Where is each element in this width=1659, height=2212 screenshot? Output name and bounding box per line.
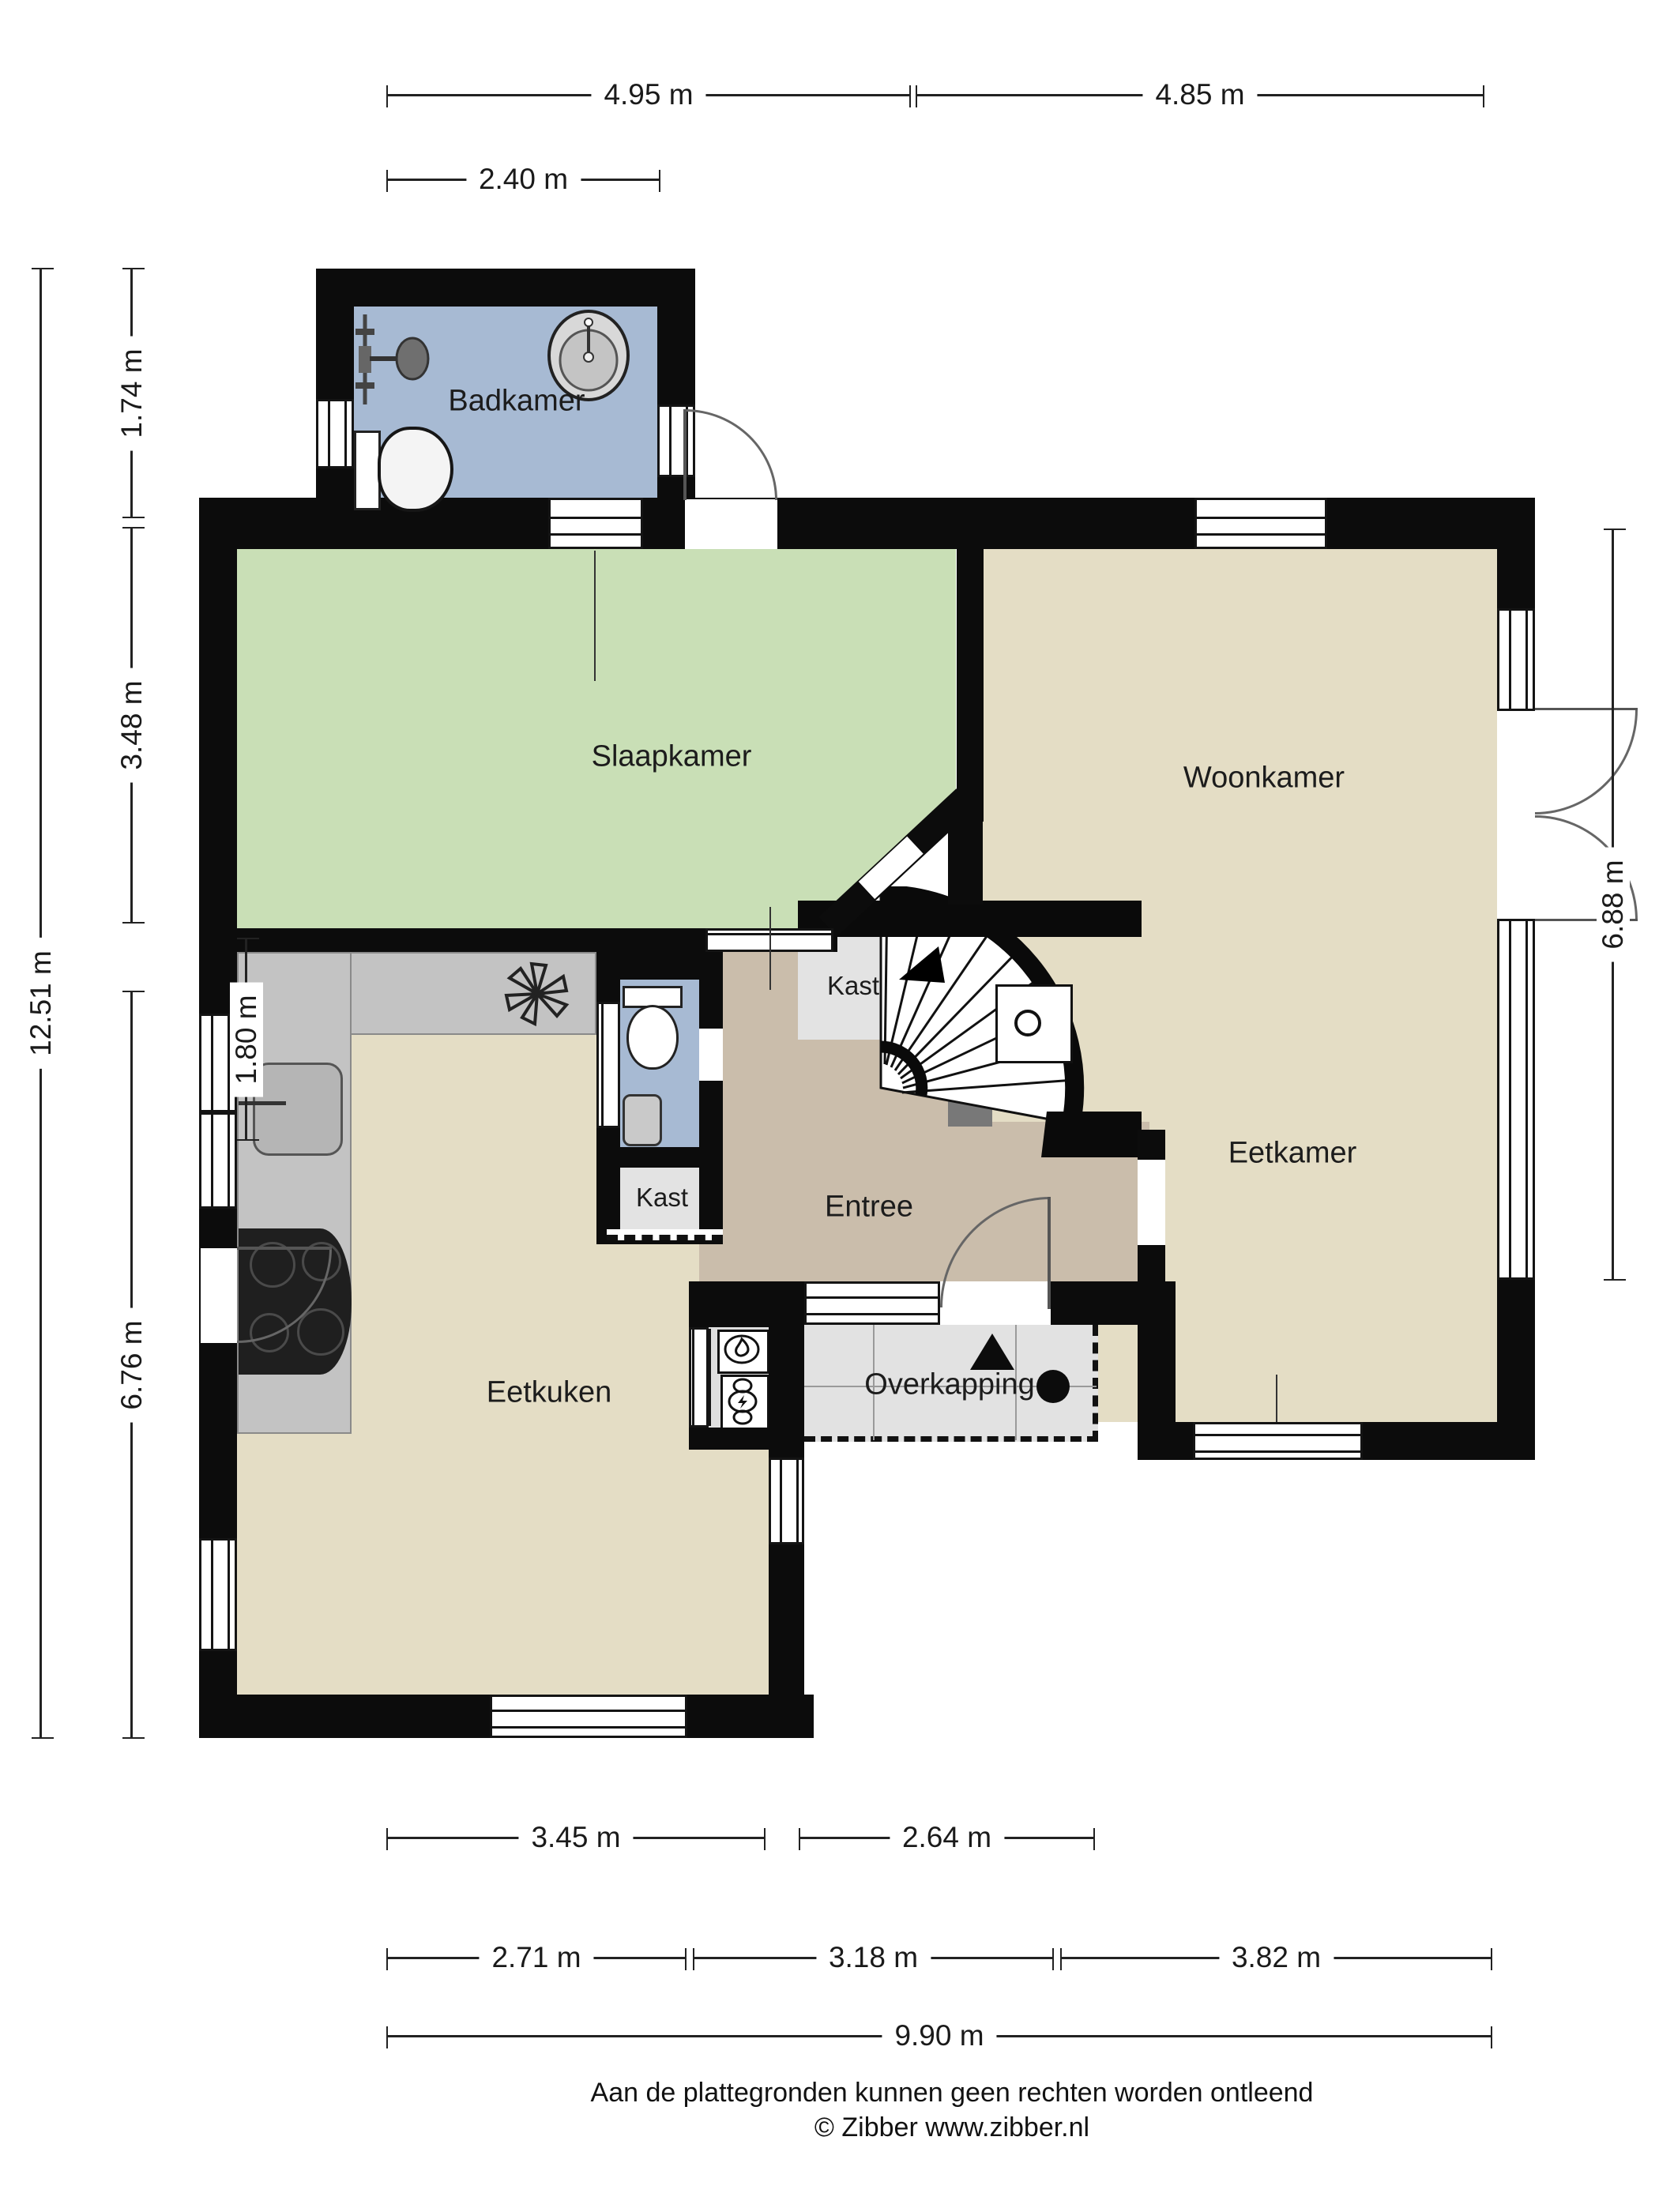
- side-door-leaf: [237, 1247, 332, 1250]
- dim-bottom-total: 9.90 m: [387, 2035, 1492, 2037]
- side-door-gap: [201, 1248, 237, 1343]
- label-woonkamer: Woonkamer: [1183, 762, 1345, 796]
- label-slaapkamer: Slaapkamer: [592, 740, 752, 774]
- wood-stove-ring: [1014, 1010, 1041, 1036]
- window-leader: [769, 907, 771, 990]
- dim-top-right: 4.85 m: [916, 94, 1484, 96]
- dim-bottom-right2: 3.82 m: [1061, 1957, 1492, 1959]
- dim-label: 3.18 m: [816, 1941, 931, 1974]
- dim-left-total: 12.51 m: [39, 269, 42, 1738]
- back-door-gap: [685, 499, 777, 549]
- stair-base-wall: [1041, 1112, 1142, 1157]
- toilet-badkamer-tank: [354, 431, 381, 510]
- dim-label: 1.74 m: [115, 336, 149, 450]
- dim-badkamer-width: 2.40 m: [387, 179, 660, 181]
- copyright-text: © Zibber www.zibber.nl: [814, 2112, 1089, 2143]
- dim-bottom-eetkuken: 3.45 m: [387, 1837, 765, 1839]
- french-door-gap: [1497, 711, 1535, 919]
- wall: [948, 818, 983, 905]
- window: [1194, 498, 1327, 549]
- label-eetkuken: Eetkuken: [487, 1376, 611, 1410]
- wall: [957, 549, 984, 822]
- post-dot: [1036, 1370, 1070, 1403]
- burner: [297, 1308, 344, 1356]
- dim-label: 2.40 m: [466, 163, 581, 196]
- shower-icon: [348, 308, 434, 411]
- dim-label: 3.48 m: [115, 668, 149, 782]
- north-triangle-icon: [970, 1334, 1014, 1370]
- label-overkapping: Overkapping: [864, 1368, 1034, 1402]
- dim-bottom-left2: 2.71 m: [387, 1957, 686, 1959]
- dim-top-left: 4.95 m: [387, 94, 910, 96]
- toilet-wc-bowl: [626, 1005, 679, 1070]
- disclaimer-text: Aan de plattegronden kunnen geen rechten…: [591, 2078, 1314, 2109]
- toilet-badkamer-bowl: [378, 427, 453, 512]
- wc-door-gap: [699, 1029, 723, 1081]
- window: [1193, 1422, 1363, 1460]
- window: [1497, 919, 1535, 1280]
- window: [804, 1281, 940, 1325]
- window: [548, 498, 643, 549]
- label-entree: Entree: [825, 1191, 913, 1224]
- meter-icons: [720, 1375, 765, 1425]
- window: [1497, 608, 1535, 711]
- dim-label: 4.95 m: [591, 78, 705, 111]
- room-slaapkamer-floor: [237, 549, 956, 928]
- dim-label: 9.90 m: [882, 2019, 996, 2052]
- wall: [769, 1281, 804, 1450]
- back-door-arc: [685, 409, 777, 500]
- dim-label: 6.76 m: [115, 1307, 149, 1422]
- window: [490, 1695, 687, 1738]
- french-door-arc-top: [1535, 709, 1638, 814]
- window: [596, 1002, 620, 1128]
- dim-bottom-mid2: 3.18 m: [694, 1957, 1053, 1959]
- window-leader: [594, 551, 596, 681]
- kast-dashed-edge: [607, 1229, 723, 1240]
- label-badkamer: Badkamer: [448, 385, 585, 419]
- dim-wc-height: 1.80 m: [245, 939, 247, 1140]
- entree-eetkamer-opening: [1138, 1160, 1165, 1245]
- dim-label: 1.80 m: [230, 982, 263, 1097]
- label-kast-stair: Kast: [827, 971, 879, 1001]
- wall: [689, 1428, 804, 1450]
- dim-slaapkamer-height: 3.48 m: [130, 528, 133, 923]
- window-leader: [1276, 1375, 1277, 1422]
- extractor-fan-icon: [494, 954, 581, 1033]
- window: [199, 1112, 237, 1209]
- window: [199, 1538, 237, 1651]
- dim-label: 4.85 m: [1142, 78, 1257, 111]
- wall: [316, 269, 695, 307]
- front-door-leaf: [1048, 1197, 1051, 1309]
- dim-label: 2.71 m: [479, 1941, 593, 1974]
- dim-bottom-overkapping: 2.64 m: [799, 1837, 1094, 1839]
- dim-label: 6.88 m: [1597, 847, 1630, 961]
- wall: [1138, 1281, 1176, 1460]
- kitchen-sink: [253, 1063, 343, 1156]
- dim-label: 3.82 m: [1219, 1941, 1334, 1974]
- floor-plan: Badkamer Slaapkamer Woonkamer Eetkamer E…: [0, 0, 1659, 2212]
- dim-label: 2.64 m: [890, 1821, 1004, 1854]
- dim-label: 3.45 m: [518, 1821, 633, 1854]
- label-kast-hal: Kast: [636, 1183, 688, 1213]
- label-eetkamer: Eetkamer: [1228, 1137, 1357, 1171]
- dim-right-height: 6.88 m: [1612, 529, 1614, 1280]
- dim-eetkuken-height: 6.76 m: [130, 991, 133, 1738]
- back-door-leaf: [683, 409, 687, 500]
- dim-badkamer-height: 1.74 m: [130, 269, 133, 517]
- dim-label: 12.51 m: [24, 938, 58, 1069]
- french-door-leaf-top: [1535, 708, 1638, 710]
- window: [769, 1458, 804, 1544]
- wc-basin: [623, 1094, 662, 1146]
- window: [689, 1327, 709, 1428]
- boiler-flame-icon: [722, 1331, 762, 1367]
